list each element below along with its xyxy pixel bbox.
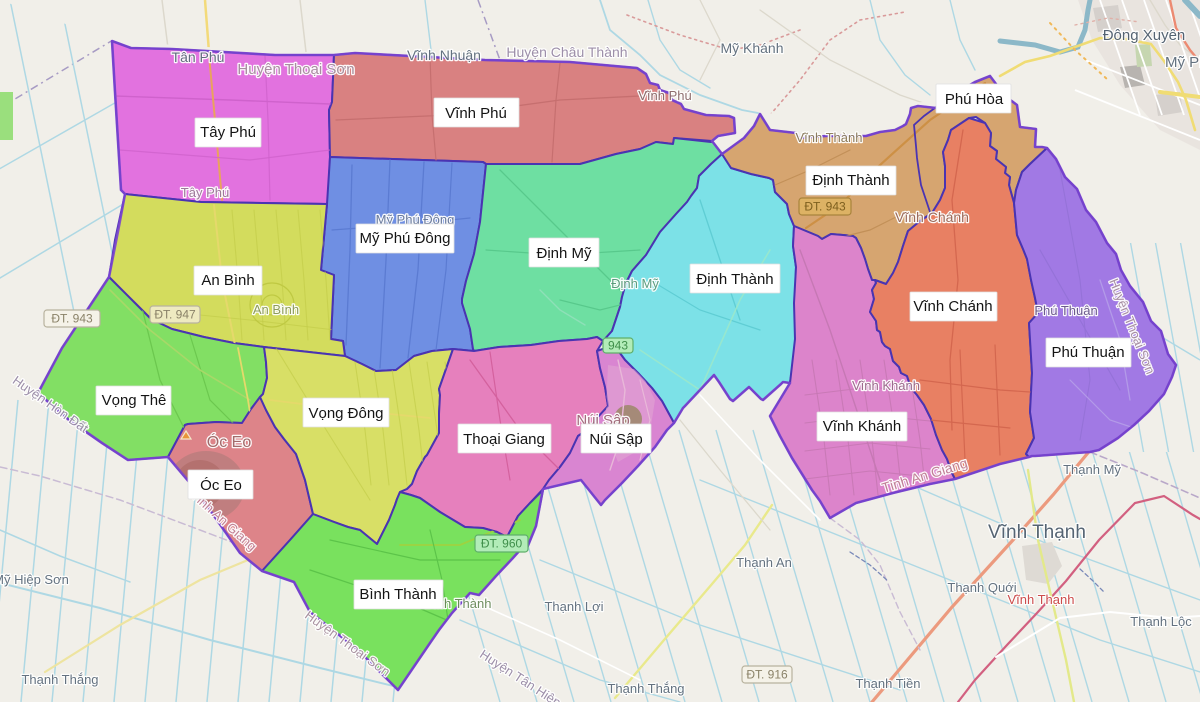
- svg-text:Định Thành: Định Thành: [696, 271, 773, 288]
- svg-text:ĐT. 960: ĐT. 960: [481, 537, 523, 551]
- svg-text:An Bình: An Bình: [253, 302, 299, 317]
- svg-text:Thạnh Tiền: Thạnh Tiền: [855, 676, 920, 691]
- svg-text:Bình Thành: Bình Thành: [359, 586, 436, 603]
- svg-text:Óc Eo: Óc Eo: [200, 477, 242, 494]
- svg-text:Vọng Thê: Vọng Thê: [102, 392, 167, 409]
- svg-text:Định Thành: Định Thành: [812, 172, 889, 189]
- svg-text:Phú Thuận: Phú Thuận: [1034, 303, 1097, 318]
- svg-text:Vọng Đông: Vọng Đông: [308, 405, 383, 422]
- svg-text:943: 943: [608, 339, 628, 353]
- svg-text:Thoại Giang: Thoại Giang: [463, 431, 545, 448]
- svg-text:Định Mỹ: Định Mỹ: [536, 245, 592, 262]
- svg-text:Thạnh Quới: Thạnh Quới: [947, 580, 1016, 595]
- svg-text:Mỹ Khánh: Mỹ Khánh: [720, 40, 783, 56]
- svg-text:Vĩnh Khánh: Vĩnh Khánh: [823, 418, 901, 435]
- svg-text:ĐT. 943: ĐT. 943: [51, 312, 93, 326]
- svg-text:Tây Phú: Tây Phú: [181, 185, 229, 200]
- svg-text:Định Mỹ: Định Mỹ: [611, 276, 659, 291]
- svg-text:An Bình: An Bình: [201, 272, 254, 289]
- svg-text:Tây Phú: Tây Phú: [200, 124, 256, 141]
- svg-text:Vĩnh Chánh: Vĩnh Chánh: [895, 209, 969, 225]
- svg-text:Núi Sập: Núi Sập: [589, 431, 642, 448]
- svg-text:Vĩnh Khánh: Vĩnh Khánh: [852, 378, 920, 393]
- svg-text:Mỹ Hiệp Sơn: Mỹ Hiệp Sơn: [0, 572, 69, 587]
- svg-text:Thạnh Lợi: Thạnh Lợi: [544, 599, 603, 614]
- svg-text:Vĩnh Nhuận: Vĩnh Nhuận: [407, 47, 481, 63]
- svg-text:Óc Eo: Óc Eo: [207, 432, 252, 451]
- svg-text:ĐT. 947: ĐT. 947: [154, 308, 196, 322]
- svg-text:Tân Phú: Tân Phú: [172, 49, 225, 65]
- svg-text:Thạnh An: Thạnh An: [736, 555, 792, 570]
- svg-text:Huyện Thoại Sơn: Huyện Thoại Sơn: [237, 61, 354, 78]
- svg-text:Phú Hòa: Phú Hòa: [945, 91, 1004, 108]
- svg-text:Huyện Châu Thành: Huyện Châu Thành: [506, 44, 627, 60]
- svg-text:Thạnh Mỹ: Thạnh Mỹ: [1063, 462, 1121, 477]
- svg-text:Thạnh Thắng: Thạnh Thắng: [21, 672, 98, 687]
- svg-text:ĐT. 943: ĐT. 943: [804, 200, 846, 214]
- svg-text:Mỹ Ph: Mỹ Ph: [1165, 54, 1200, 71]
- svg-text:Đông Xuyên: Đông Xuyên: [1103, 27, 1186, 44]
- svg-text:Vĩnh Thành: Vĩnh Thành: [796, 130, 863, 145]
- svg-text:Phú Thuận: Phú Thuận: [1051, 344, 1124, 361]
- svg-text:ĐT. 916: ĐT. 916: [746, 668, 788, 682]
- svg-text:Mỹ Phú Đông: Mỹ Phú Đông: [360, 230, 451, 247]
- svg-text:Thạnh Lộc: Thạnh Lộc: [1130, 614, 1192, 629]
- svg-text:Vĩnh Chánh: Vĩnh Chánh: [913, 298, 992, 315]
- svg-text:Vĩnh Thạnh: Vĩnh Thạnh: [1008, 592, 1075, 607]
- svg-text:Vĩnh Thạnh: Vĩnh Thạnh: [988, 522, 1086, 543]
- svg-text:Vĩnh Phú: Vĩnh Phú: [638, 88, 692, 103]
- svg-text:Vĩnh Phú: Vĩnh Phú: [445, 105, 507, 122]
- svg-text:Thạnh Thắng: Thạnh Thắng: [607, 681, 684, 696]
